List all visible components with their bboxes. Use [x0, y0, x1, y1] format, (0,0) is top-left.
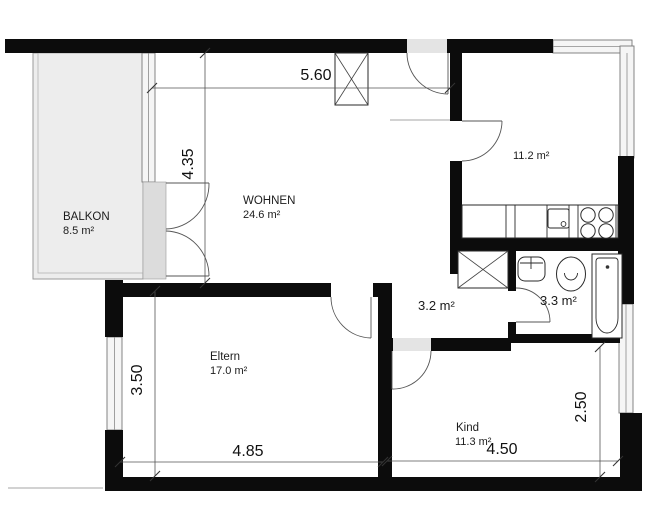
room-label-balkon: BALKON — [63, 211, 110, 223]
wall-shaft-left — [450, 251, 458, 274]
balcony-door-swing-bottom — [166, 231, 209, 276]
dim-label-eltern-width: 4.85 — [232, 443, 263, 460]
entrance-door-gap — [407, 39, 447, 53]
room-area-kueche: 11.2 m² — [513, 150, 550, 162]
balcony-glass-wall — [142, 53, 155, 182]
room-area-flur: 3.2 m² — [418, 298, 456, 313]
room-area-kind: 11.3 m² — [455, 436, 492, 448]
floor-plan: 5.60 4.35 3.50 4.85 4.50 — [0, 0, 652, 508]
dim-label-kind-depth: 2.50 — [573, 391, 590, 422]
wall-right-lower — [620, 413, 642, 479]
kind-door-swing — [392, 351, 431, 389]
hall-shaft — [458, 251, 508, 288]
wall-kind-top-stub — [378, 338, 393, 351]
kitchen-counter — [462, 205, 618, 238]
wall-top-left — [5, 39, 407, 53]
eltern-door — [331, 297, 371, 338]
toilet-bowl — [557, 257, 586, 291]
dim-label-eltern-depth: 3.50 — [129, 364, 146, 395]
dim-eltern-depth: 3.50 — [129, 286, 160, 481]
chimney-shaft — [335, 53, 368, 105]
balcony-floor — [33, 53, 143, 279]
burner-2 — [599, 208, 613, 222]
kind-door — [392, 351, 431, 389]
room-area-eltern: 17.0 m² — [210, 365, 248, 377]
washbasin-bowl — [518, 257, 545, 281]
wall-wohnen-kueche-lower — [450, 161, 462, 240]
wall-top-right — [447, 39, 553, 53]
balcony-door-threshold — [143, 182, 166, 279]
eltern-window — [107, 337, 122, 430]
washbasin — [518, 257, 545, 281]
dim-label-wohnen-width: 5.60 — [300, 67, 331, 84]
dim-kind-width: 4.50 — [382, 441, 623, 466]
balcony — [33, 53, 143, 279]
room-label-wohnen: WOHNEN — [243, 195, 295, 207]
room-area-bad: 3.3 m² — [540, 293, 578, 308]
wall-kueche-bottom — [450, 238, 630, 251]
kitchen-door-swing — [462, 121, 502, 161]
toilet — [557, 257, 586, 291]
kind-door-gap — [393, 338, 431, 351]
wall-wohnen-kueche-upper — [450, 53, 462, 121]
floor-plan-drawing: 5.60 4.35 3.50 4.85 4.50 — [0, 0, 652, 508]
room-area-balkon: 8.5 m² — [63, 225, 95, 237]
kitchen-corner-window — [553, 40, 634, 158]
balcony-double-door — [166, 183, 209, 276]
burner-4 — [599, 224, 613, 238]
dim-label-wohnen-depth: 4.35 — [180, 148, 197, 179]
room-label-eltern: Eltern — [210, 351, 240, 363]
dim-wohnen-depth: 4.35 — [180, 48, 210, 288]
wall-kind-top — [431, 338, 511, 351]
burner-1 — [581, 208, 595, 222]
wall-eltern-top — [105, 283, 331, 297]
wall-bad-left-upper — [508, 245, 516, 291]
eltern-door-swing — [331, 297, 371, 338]
dimensions: 5.60 4.35 3.50 4.85 4.50 — [115, 48, 623, 482]
room-area-wohnen: 24.6 m² — [243, 209, 281, 221]
bathtub — [592, 254, 622, 338]
room-label-kind: Kind — [456, 422, 479, 434]
wall-bottom — [105, 477, 642, 491]
bathtub-drain — [606, 265, 610, 269]
balcony-door-swing-top — [166, 183, 209, 229]
kitchen-door — [462, 121, 502, 161]
dim-wohnen-width: 5.60 — [147, 67, 455, 93]
dim-eltern-width: 4.85 — [115, 443, 388, 467]
burner-3 — [581, 224, 595, 238]
